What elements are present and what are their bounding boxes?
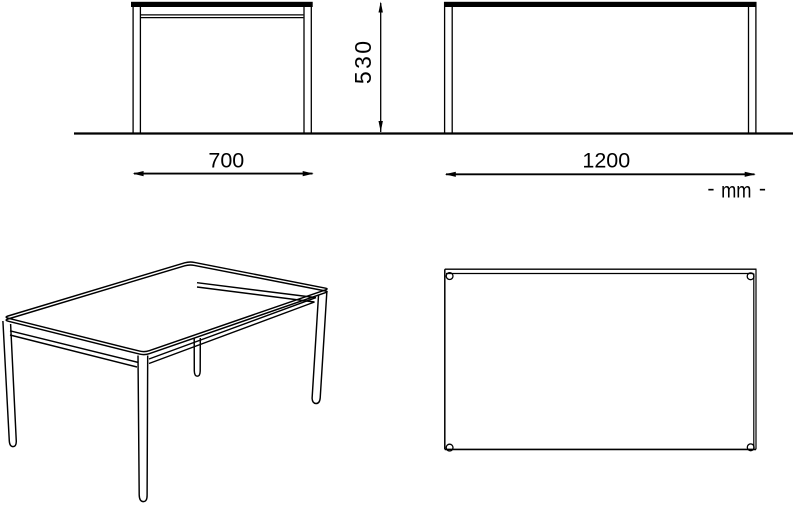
svg-text:-: -: [707, 177, 714, 201]
svg-text:mm: mm: [721, 179, 751, 203]
svg-text:530: 530: [350, 39, 376, 85]
svg-text:-: -: [759, 177, 766, 201]
svg-text:1200: 1200: [582, 149, 630, 173]
svg-text:700: 700: [208, 149, 244, 173]
